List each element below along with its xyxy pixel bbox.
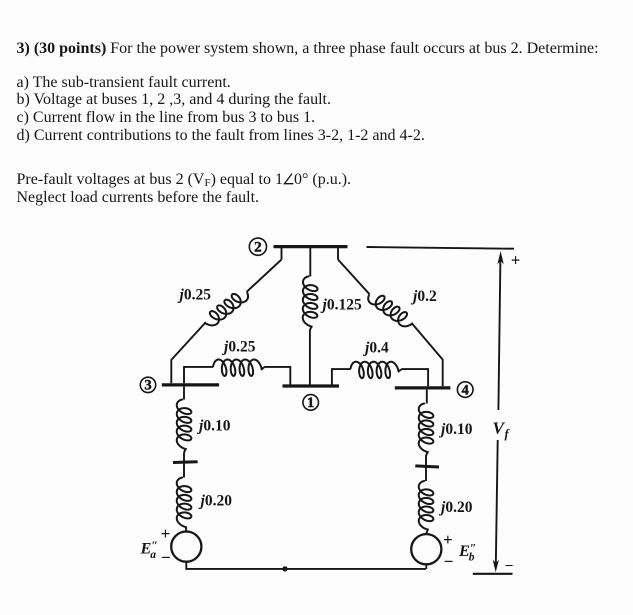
svg-text:j0.20: j0.20 — [198, 493, 233, 510]
svg-text:1: 1 — [307, 395, 314, 411]
svg-text:−: − — [505, 559, 514, 575]
svg-text:−: − — [161, 548, 171, 567]
svg-text:E″b: E″b — [458, 541, 477, 564]
svg-text:j0.4: j0.4 — [362, 340, 389, 357]
svg-text:+: + — [161, 524, 171, 543]
svg-text:j0.10: j0.10 — [196, 418, 231, 435]
svg-text:3: 3 — [144, 378, 151, 394]
svg-text:4: 4 — [462, 382, 470, 398]
svg-text:2: 2 — [254, 239, 262, 256]
svg-text:j0.10: j0.10 — [438, 421, 473, 438]
svg-text:+: + — [443, 530, 453, 549]
svg-text:j0.25: j0.25 — [177, 287, 212, 304]
svg-text:j0.25: j0.25 — [221, 339, 256, 356]
svg-text:j0.2: j0.2 — [410, 288, 437, 305]
svg-text:−: − — [444, 552, 454, 571]
svg-text:j0.20: j0.20 — [438, 499, 473, 516]
svg-text:E″a: E″a — [140, 538, 159, 561]
svg-text:+: + — [511, 250, 520, 269]
svg-text:j0.125: j0.125 — [320, 297, 362, 314]
svg-text:Vf: Vf — [493, 419, 511, 442]
